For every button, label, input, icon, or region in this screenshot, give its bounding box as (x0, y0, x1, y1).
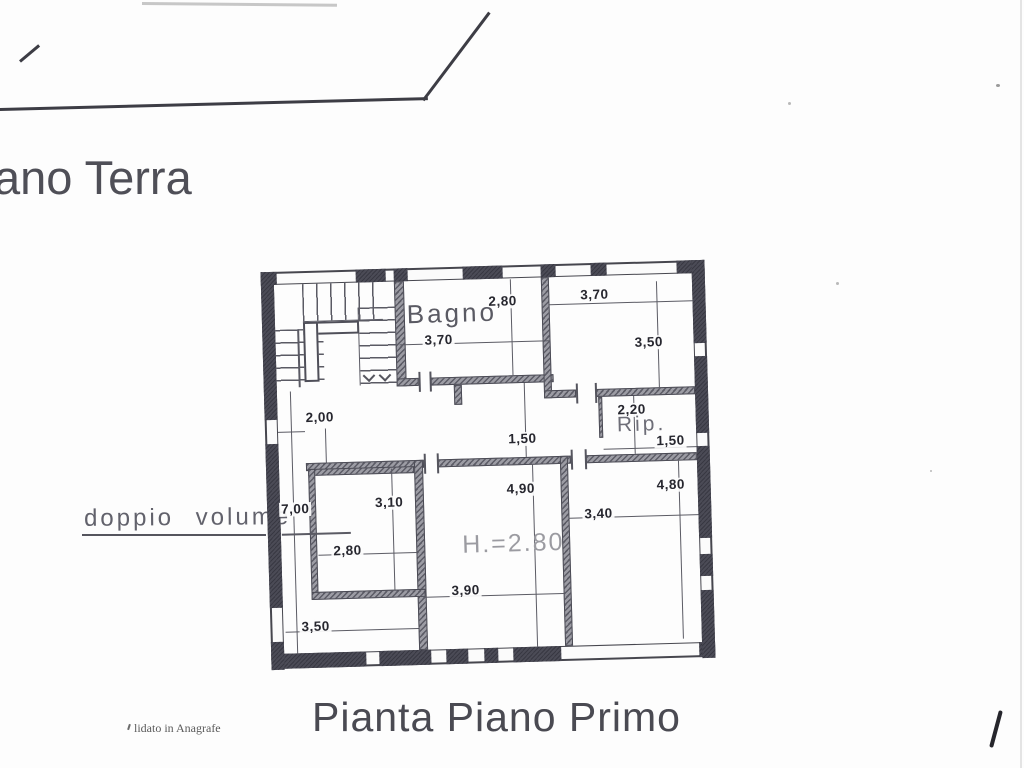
room-label-rip: Rip. (617, 413, 667, 435)
stair-landing-outline (303, 322, 320, 382)
wall-pier (590, 263, 606, 276)
wall-pier (700, 554, 714, 576)
wall-pier (513, 646, 561, 662)
door-jamb (585, 449, 588, 469)
door-jamb (429, 372, 432, 392)
dim-right-width: 3,40 (582, 506, 615, 520)
wall-topright-bottom (544, 390, 576, 399)
wall-topright-bottom (596, 386, 695, 397)
stamp-note: lidato in Anagrafe (134, 721, 221, 736)
wall-stair-bagno (394, 281, 407, 386)
wall-center-left (414, 460, 428, 650)
first-floor-plan: 3,70 2,80 3,70 3,50 2,00 1,50 2,20 1,50 … (261, 260, 716, 670)
dim-rip-depth: 1,50 (654, 433, 687, 447)
doppio-volume-leader-line (82, 534, 266, 536)
dim-center-width: 3,90 (449, 583, 482, 597)
dim-corridor: 1,50 (506, 432, 539, 446)
room-label-bagno: Bagno (406, 299, 497, 328)
wall-pier (701, 590, 716, 658)
dim-left-height: 7,00 (279, 502, 312, 516)
wall-pier (691, 260, 706, 343)
door-jamb (576, 383, 579, 403)
scan-right-edge (1020, 0, 1022, 768)
wall-pier (484, 648, 498, 663)
door-jamb (437, 453, 440, 473)
stairwell (274, 282, 397, 388)
handwritten-stroke (989, 710, 1003, 748)
wall-pier (697, 446, 713, 538)
stray-pen-tick (19, 44, 40, 62)
dim-topright-depth: 3,50 (632, 335, 665, 349)
dim-center-depth: 4,90 (504, 482, 537, 496)
wall-pier (540, 264, 555, 277)
wall-corridor (586, 452, 697, 463)
wall-pier (379, 650, 431, 666)
wall-rip-left (598, 397, 603, 438)
wall-pier (271, 642, 285, 670)
wall-smallroom-bottom (311, 589, 425, 600)
dim-left-corridor: 2,00 (303, 410, 336, 424)
stamp-tick (127, 724, 131, 730)
wall-bagno-bottom (431, 374, 554, 385)
height-note: H.=2.80 (462, 530, 565, 558)
wall-pier (355, 269, 385, 283)
scan-speckle (788, 102, 791, 105)
wall-pier (694, 356, 709, 433)
dim-topright-width: 3,70 (578, 288, 611, 302)
wall-pier (265, 444, 283, 608)
ground-floor-label: ano Terra (0, 150, 192, 205)
doppio-volume-label: doppio volume (84, 503, 291, 533)
wall-pier (393, 268, 407, 281)
door-jamb (571, 450, 574, 470)
scanned-floor-plan-page: ano Terra doppio volume (0, 0, 1024, 768)
dim-right-depth: 4,80 (654, 477, 687, 491)
dim-line (426, 593, 564, 598)
ground-floor-diagonal-line (422, 12, 490, 101)
dim-line (325, 429, 327, 463)
ground-floor-wall-line (0, 97, 428, 110)
wall-pier (271, 651, 366, 669)
dim-line (391, 469, 396, 591)
door-jamb (424, 454, 427, 474)
dim-bagno-width: 3,70 (422, 333, 455, 347)
faint-top-line (142, 2, 337, 6)
dim-left-width: 3,50 (299, 619, 332, 633)
scan-speckle (930, 470, 932, 472)
wall-corridor (438, 456, 571, 468)
plan-title: Pianta Piano Primo (312, 694, 681, 741)
dim-line (550, 300, 693, 305)
wall-pier (462, 266, 502, 280)
dim-smallroom-depth: 3,10 (373, 495, 406, 509)
wall-bagno-bottom (397, 378, 419, 387)
wall-pier (446, 649, 468, 665)
door-jamb (418, 372, 421, 392)
scan-speckle (996, 84, 1000, 87)
scan-speckle (836, 282, 839, 285)
door-jamb (595, 383, 598, 403)
dim-smallroom-width: 2,80 (331, 544, 364, 558)
wall-stub (454, 385, 463, 405)
